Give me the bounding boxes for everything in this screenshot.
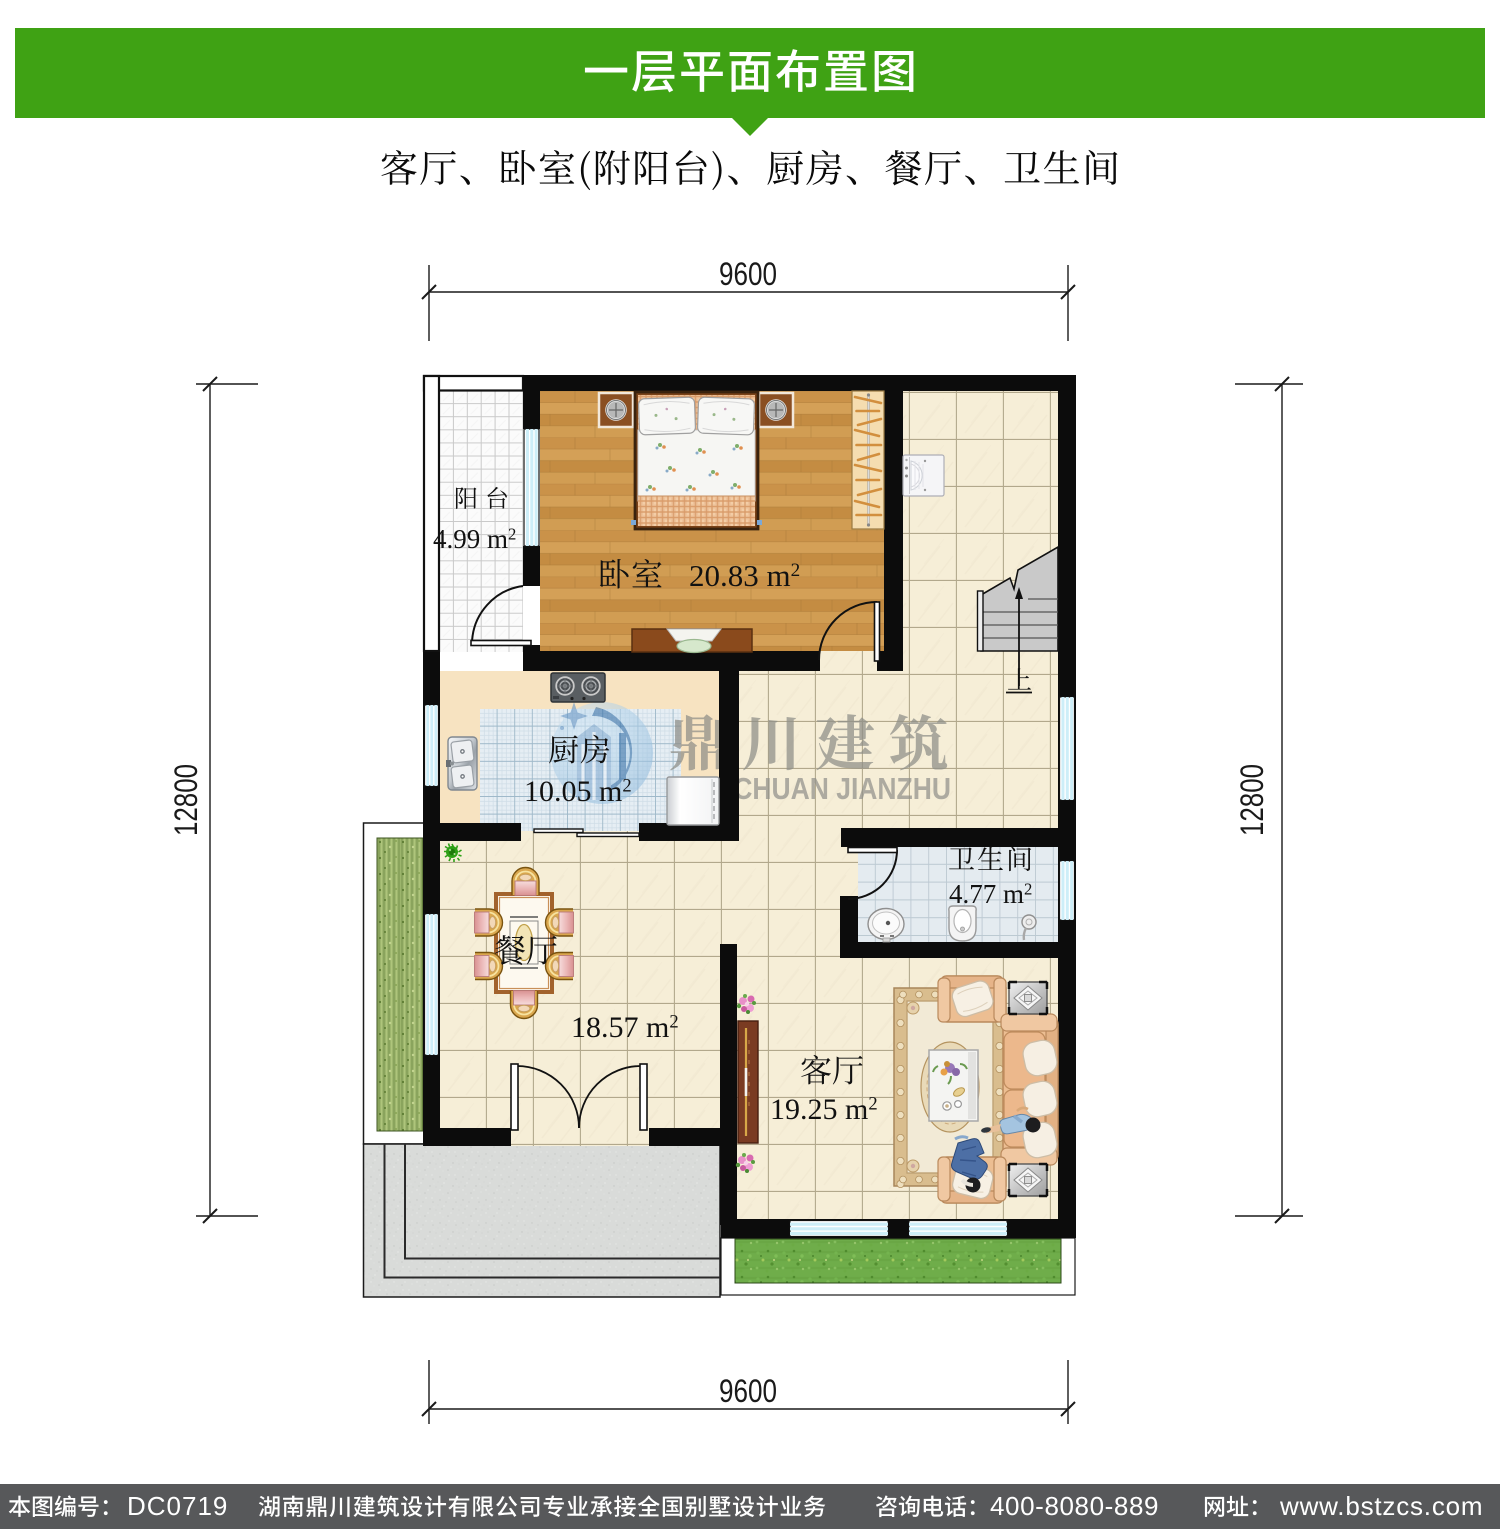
- svg-text:400-8080-889: 400-8080-889: [990, 1491, 1159, 1521]
- svg-text:19.25 m2: 19.25 m2: [770, 1093, 878, 1126]
- svg-text:9600: 9600: [719, 256, 777, 292]
- svg-text:9600: 9600: [719, 1373, 777, 1409]
- svg-text:4.99 m2: 4.99 m2: [433, 524, 516, 554]
- svg-text:10.05 m2: 10.05 m2: [524, 775, 632, 808]
- svg-text:4.77 m2: 4.77 m2: [949, 879, 1032, 909]
- svg-text:20.83 m2: 20.83 m2: [689, 558, 800, 593]
- svg-text:www.bstzcs.com: www.bstzcs.com: [1279, 1491, 1483, 1521]
- svg-text:12800: 12800: [168, 764, 204, 836]
- svg-text:DC0719: DC0719: [127, 1491, 228, 1521]
- svg-text:18.57 m2: 18.57 m2: [571, 1011, 679, 1044]
- svg-text:12800: 12800: [1234, 764, 1270, 836]
